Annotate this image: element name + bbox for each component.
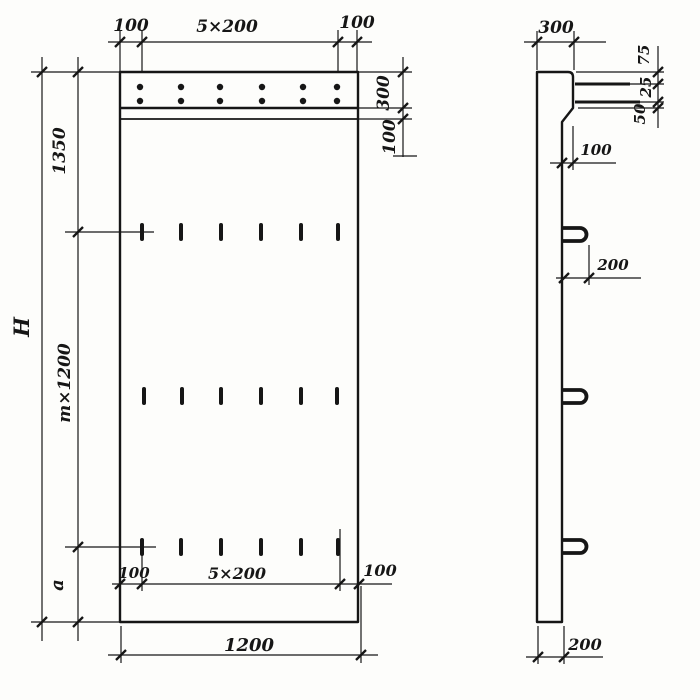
rebar-dots (137, 84, 340, 104)
dim-thickness-200: 200 (567, 635, 601, 654)
dim-cap-300: 300 (374, 75, 394, 111)
loop-dashes-row-1 (142, 225, 338, 239)
side-top-dimension: 300 (524, 18, 606, 70)
dim-bottom-right-100: 100 (363, 561, 396, 580)
dim-1350: 1350 (50, 127, 70, 174)
front-top-dimension: 100 5×200 100 (108, 13, 375, 71)
dim-side-100: 100 (580, 141, 612, 159)
dim-a: a (47, 579, 68, 591)
dim-25: 25 (637, 77, 655, 99)
front-left-chain-dimension: 1350 m×1200 a (47, 57, 156, 641)
dim-1200: 1200 (224, 635, 275, 656)
dim-top-right-100: 100 (339, 13, 375, 33)
dim-top-left-100: 100 (113, 16, 149, 36)
side-step-dimension: 100 (550, 126, 616, 170)
technical-drawing: 100 5×200 100 300 100 H (0, 0, 700, 700)
panel-outline (120, 72, 358, 622)
side-view: 300 75 25 50 100 (524, 18, 664, 664)
side-bottom-dimension: 200 (526, 626, 603, 664)
protruding-bars (575, 84, 640, 102)
dim-bottom-left-100: 100 (118, 564, 150, 582)
dim-50: 50 (631, 103, 649, 124)
front-right-dimension: 300 100 (358, 57, 417, 157)
dim-overall-H: H (9, 316, 34, 338)
dim-m-x-1200: m×1200 (55, 343, 75, 423)
side-edge-chain-dimension: 75 25 50 (576, 45, 664, 128)
front-width-dimension: 1200 (108, 586, 378, 663)
loop-dashes-row-3 (142, 540, 338, 554)
dim-75: 75 (635, 45, 653, 66)
front-bottom-inner-dimension: 100 5×200 100 (112, 529, 397, 591)
dim-bottom-5x200: 5×200 (208, 564, 266, 583)
dim-loop-200: 200 (596, 256, 629, 274)
loop-dashes-row-2 (144, 389, 337, 403)
dim-strip-100: 100 (380, 119, 400, 155)
side-loop-dimension: 200 (556, 245, 641, 285)
drawing-sheet: 100 5×200 100 300 100 H (0, 0, 700, 700)
dim-top-5x200: 5×200 (196, 17, 258, 37)
front-view: 100 5×200 100 300 100 H (9, 13, 417, 663)
dim-side-300: 300 (538, 18, 574, 38)
